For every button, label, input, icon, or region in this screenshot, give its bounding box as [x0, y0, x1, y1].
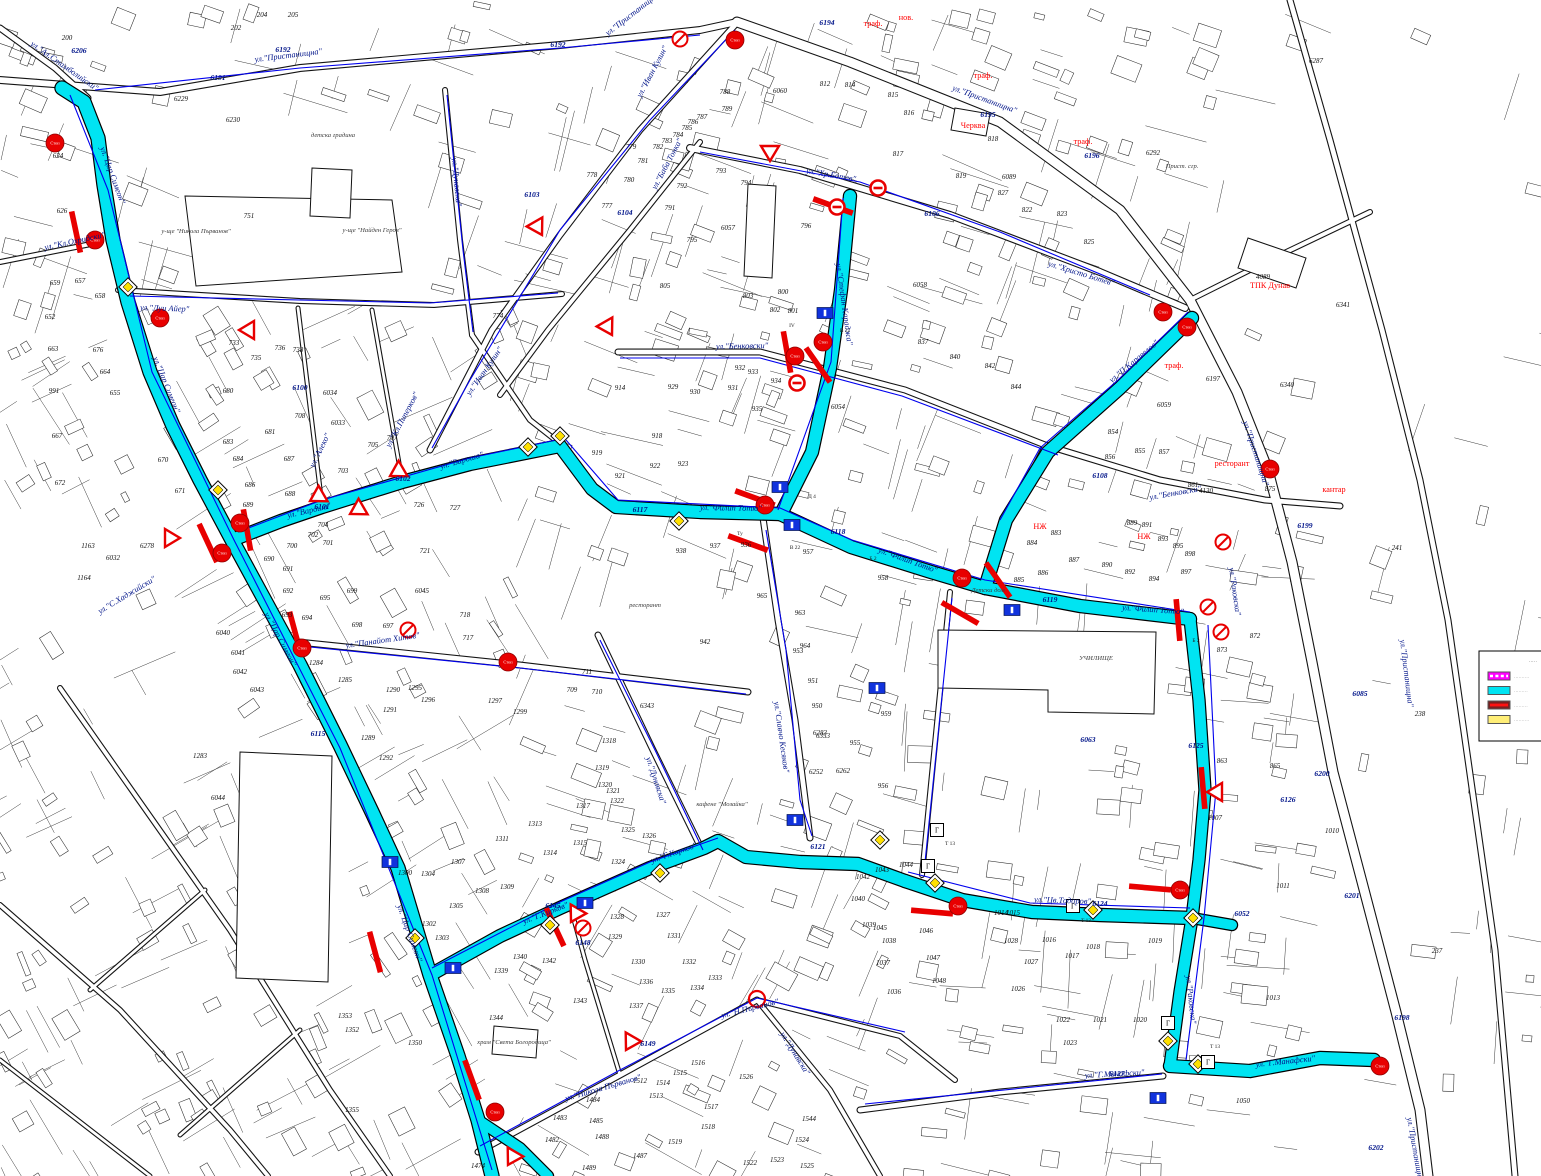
street-name-label: ул."Панайот Хитов": [344, 631, 421, 650]
street-ref-label: 6201: [1344, 891, 1359, 900]
parcel-label: 784: [673, 131, 684, 139]
svg-text:Стоп: Стоп: [217, 551, 227, 556]
poi-red-label: ресторант: [1215, 459, 1250, 468]
legend-item-label: ··········: [1514, 675, 1530, 680]
yield-sign-icon: [597, 317, 620, 339]
street-ref-label: 6106: [924, 209, 939, 218]
parcel-label: 702: [308, 531, 319, 539]
parcel-label: 863: [1217, 757, 1228, 765]
parcel-label: 1299: [513, 708, 528, 716]
stop-sign-icon: Стоп: [1371, 1057, 1389, 1075]
parcel-label: 855: [1135, 447, 1146, 455]
parcel-label: 897: [1181, 568, 1192, 576]
parcel-label: 1043: [875, 866, 890, 874]
parcel-label: 840: [950, 353, 961, 361]
parcel-label: 6032: [106, 554, 121, 562]
parcel-label: 1292: [379, 754, 394, 762]
parcel-label: 6041: [231, 649, 245, 657]
parcel-label: 955: [850, 739, 861, 747]
parcel-label: 1474: [471, 1162, 486, 1170]
parcel-label: 204: [257, 11, 268, 19]
street-ref-label: 6117: [633, 505, 649, 514]
parcel-label: 667: [52, 432, 63, 440]
poi-red-label: ТПК Дунав: [1250, 281, 1290, 290]
stop-sign-icon: Стоп: [213, 544, 231, 562]
stop-sign-icon: Стоп: [1178, 318, 1196, 336]
poi-red-label: траф.: [1074, 137, 1093, 146]
parcel-label: 991: [49, 387, 60, 395]
parcel-label: 1300: [398, 869, 413, 877]
svg-text:Стоп: Стоп: [503, 660, 513, 665]
poi-red-label: траф.: [1165, 361, 1184, 370]
parcel-label: 1314: [543, 849, 558, 857]
parcel-label: 1332: [682, 958, 697, 966]
street-ref-label: 6085: [1352, 689, 1367, 698]
stop-sign-icon: Стоп: [1171, 881, 1189, 899]
parcel-label: 938: [676, 547, 687, 555]
parcel-label: 671: [175, 487, 186, 495]
street-ref-label: 6104: [617, 208, 632, 217]
svg-text:Стоп: Стоп: [235, 521, 245, 526]
parcel-label: 1290: [386, 686, 401, 694]
sign-code-label: Т 13: [1081, 918, 1091, 924]
street-ref-label: 6100: [292, 383, 307, 392]
parcel-label: 1010: [1325, 827, 1340, 835]
parcel-label: 205: [288, 11, 299, 19]
parcel-label: 708: [295, 412, 306, 420]
street-name-label: ул."Филип Тотю": [699, 503, 762, 513]
info-sign-icon: [869, 683, 885, 694]
parcel-label: 1027: [1024, 958, 1039, 966]
parcel-label: 1305: [449, 902, 464, 910]
parcel-label: 687: [284, 455, 295, 463]
parcel-label: 726: [414, 501, 425, 509]
parcel-label: 697: [383, 622, 394, 630]
no-entry-sign-icon: [790, 376, 805, 391]
parcel-label: 6042: [233, 668, 248, 676]
parcel-label: 1516: [691, 1059, 706, 1067]
street-ref-label: 6148: [575, 938, 590, 947]
parcel-label: 1163: [81, 542, 95, 550]
parcel-label: 681: [265, 428, 276, 436]
parcel-label: 1489: [582, 1164, 597, 1172]
map-canvas[interactable]: СтопСтопСтопСтопСтопСтопСтопСтопСтопСтоп…: [0, 0, 1541, 1176]
parcel-label: 934: [771, 377, 782, 385]
parcel-label: 694: [302, 614, 313, 622]
parcel-label: 1487: [633, 1152, 648, 1160]
parcel-label: 1022: [1056, 1016, 1071, 1024]
yield-sign-icon: [165, 529, 180, 547]
parcel-label: 1048: [932, 977, 947, 985]
landmark-label: Детски дом: [970, 587, 1005, 594]
parcel-label: 1331: [667, 932, 681, 940]
road-closure-bar-icon: [911, 907, 953, 916]
parcel-label: 819: [956, 172, 967, 180]
parcel-label: 1519: [668, 1138, 683, 1146]
parcel-label: 1028: [1004, 937, 1019, 945]
parcel-label: 6089: [1002, 173, 1017, 181]
street-name-label: ул."Луи Айер": [139, 303, 190, 314]
parcel-label: 703: [338, 467, 349, 475]
parcel-label: 935: [752, 405, 763, 413]
parcel-label: 921: [615, 472, 626, 480]
parcel-label: 856: [1105, 453, 1116, 461]
sign-code-label: IV: [789, 323, 795, 329]
parcel-label: 1522: [743, 1159, 758, 1167]
poi-red-label: траф.: [864, 19, 883, 28]
parcel-label: 6197: [1206, 375, 1221, 383]
parcel-label: 795: [687, 236, 698, 244]
legend-item-label: ·········: [1514, 689, 1528, 694]
parcel-label: 923: [678, 460, 689, 468]
parcel-label: 794: [741, 179, 752, 187]
parcel-label: 1321: [606, 787, 620, 795]
street-ref-label: 6195: [980, 110, 995, 119]
parcel-label: 1339: [494, 967, 509, 975]
road-closure-bar-icon: [367, 931, 383, 973]
parcel-label: 1514: [656, 1079, 671, 1087]
parcel-label: 1047: [926, 954, 941, 962]
parcel-label: 692: [283, 587, 294, 595]
street-ref-label: 6108: [1092, 471, 1107, 480]
parcel-label: 865: [1270, 762, 1281, 770]
parcel-label: 717: [463, 634, 474, 642]
parcel-label: 937: [710, 542, 721, 550]
parcel-label: 918: [652, 432, 663, 440]
stop-sign-icon: Стоп: [293, 639, 311, 657]
parcel-label: 1017: [1065, 952, 1080, 960]
parcel-label: 1344: [489, 1014, 504, 1022]
parcel-label: 663: [48, 345, 59, 353]
parcel-label: 6043: [250, 686, 265, 694]
parcel-label: 6340: [1280, 381, 1295, 389]
parcel-label: 6040: [216, 629, 231, 637]
svg-text:Стоп: Стоп: [155, 316, 165, 321]
parcel-label: 664: [100, 368, 111, 376]
parcel-label: 6278: [140, 542, 155, 550]
street-ref-label: 6191: [210, 73, 225, 82]
landmark-label: детска градина: [311, 132, 356, 139]
junction-plate-sign-icon: Г: [1162, 1017, 1175, 1030]
parcel-label: 873: [1217, 646, 1228, 654]
street-ref-label: 6196: [1084, 151, 1099, 160]
parcel-label: 693: [282, 611, 293, 619]
svg-text:Г: Г: [935, 827, 939, 835]
parcel-label: 805: [660, 282, 671, 290]
parcel-label: 1513: [649, 1092, 664, 1100]
parcel-label: 1524: [795, 1136, 810, 1144]
parcel-label: 738: [293, 346, 304, 354]
parcel-label: 6033: [331, 419, 346, 427]
parcel-label: 710: [592, 688, 603, 696]
parcel-label: 704: [318, 521, 329, 529]
parcel-label: 1040: [851, 895, 866, 903]
parcel-label: 6252: [809, 768, 824, 776]
street-name-label: ул."Никола Първанов": [563, 1073, 642, 1104]
prohibition-sign-icon: [1201, 600, 1216, 615]
prohibition-sign-icon: [576, 921, 591, 936]
parcel-label: 889: [1127, 519, 1138, 527]
parcel-label: 655: [110, 389, 121, 397]
parcel-label: 727: [450, 504, 461, 512]
street-ref-label: 6103: [524, 190, 539, 199]
parcel-label: 659: [50, 279, 61, 287]
poi-red-label: траф.: [974, 71, 993, 80]
parcel-label: 690: [264, 555, 275, 563]
parcel-label: 1352: [345, 1026, 360, 1034]
landmark-label: Прист. сгр.: [1165, 163, 1199, 170]
info-sign-icon: [1150, 1093, 1166, 1104]
parcel-label: 6287: [1309, 57, 1324, 65]
parcel-label: 815: [888, 91, 899, 99]
stop-sign-icon: Стоп: [486, 1103, 504, 1121]
info-sign-icon: [577, 898, 593, 909]
parcel-label: 6341: [1336, 301, 1350, 309]
junction-plate-sign-icon: Г: [931, 824, 944, 837]
parcel-label: 875: [1265, 485, 1276, 493]
street-ref-label: 6192: [550, 40, 565, 49]
parcel-label: 857: [1159, 448, 1170, 456]
info-sign-icon: [1004, 605, 1020, 616]
svg-text:Стоп: Стоп: [790, 354, 800, 359]
parcel-label: 1036: [887, 988, 902, 996]
parcel-label: 735: [251, 354, 262, 362]
parcel-label: 942: [700, 638, 711, 646]
parcel-label: 1046: [919, 927, 934, 935]
parcel-label: 652: [45, 313, 56, 321]
parcel-label: 709: [567, 686, 578, 694]
parcel-label: 1355: [345, 1106, 360, 1114]
parcel-label: 1038: [882, 937, 897, 945]
parcel-label: 1353: [338, 1012, 353, 1020]
parcel-label: 237: [1432, 947, 1443, 955]
parcel-label: 1544: [802, 1115, 817, 1123]
svg-text:Стоп: Стоп: [50, 141, 60, 146]
parcel-label: 844: [1011, 383, 1022, 391]
parcel-label: 791: [665, 204, 676, 212]
parcel-label: 721: [420, 547, 431, 555]
parcel-label: 818: [988, 135, 999, 143]
parcel-label: 1019: [1148, 937, 1163, 945]
street-name-label: ул."Иван Кулин": [634, 44, 669, 100]
parcel-label: 238: [1415, 710, 1426, 718]
parcel-label: 698: [352, 621, 363, 629]
parcel-label: 200: [62, 34, 73, 42]
parcel-label: 670: [158, 456, 169, 464]
street-ref-label: 6115: [311, 729, 326, 738]
parcel-label: 684: [233, 455, 244, 463]
map-legend: ········································…: [1479, 651, 1541, 741]
parcel-label: 705: [368, 441, 379, 449]
svg-text:Стоп: Стоп: [730, 38, 740, 43]
parcel-label: 689: [243, 501, 254, 509]
parcel-label: 1324: [611, 858, 626, 866]
parcel-label: 1023: [1063, 1039, 1078, 1047]
label-layer: 2002022042056246266229623075165965765865…: [28, 0, 1443, 1176]
sign-code-label: Ту: [737, 531, 743, 537]
parcel-label: 1319: [595, 764, 610, 772]
parcel-label: 842: [985, 362, 996, 370]
parcel-label: 1164: [77, 574, 91, 582]
parcel-label: 691: [283, 565, 294, 573]
legend-item-label: ··········: [1514, 718, 1530, 723]
parcel-label: 1328: [610, 913, 625, 921]
parcel-label: 6044: [211, 794, 226, 802]
parcel-label: 672: [55, 479, 66, 487]
parcel-label: 1336: [639, 978, 654, 986]
parcel-label: 683: [223, 438, 234, 446]
street-ref-label: 6199: [1297, 521, 1312, 530]
parcel-label: 774: [493, 312, 504, 320]
parcel-label: 1311: [495, 835, 508, 843]
landmark-label: ресторант: [628, 602, 661, 609]
parcel-label: 1295: [408, 684, 423, 692]
parcel-label: 1021: [1093, 1016, 1107, 1024]
street-name-label: ул."Славчо Кесяков": [772, 700, 791, 774]
prohibition-sign-icon: [1214, 625, 1229, 640]
parcel-label: 6292: [1146, 149, 1161, 157]
parcel-label: 817: [893, 150, 904, 158]
parcel-label: 822: [1022, 206, 1033, 214]
parcel-label: 1042: [856, 873, 871, 881]
street-ref-label: 6125: [1188, 741, 1203, 750]
svg-text:Г: Г: [1166, 1020, 1170, 1028]
parcel-label: 793: [716, 167, 727, 175]
parcel-label: 1007: [1208, 814, 1223, 822]
parcel-label: 699: [347, 587, 358, 595]
parcel-label: 1044: [899, 861, 914, 869]
stop-sign-icon: Стоп: [786, 347, 804, 365]
stop-sign-icon: Стоп: [814, 333, 832, 351]
parcel-label: 777: [602, 202, 613, 210]
parcel-label: 6054: [831, 403, 846, 411]
sign-code-label: Д 4: [808, 494, 816, 500]
poi-red-label: нов.: [899, 13, 913, 22]
parcel-label: 890: [1102, 561, 1113, 569]
parcel-label: 1304: [421, 870, 436, 878]
parcel-label: 825: [1084, 238, 1095, 246]
parcel-label: 6059: [1157, 401, 1172, 409]
parcel-label: 891: [1142, 521, 1153, 529]
street-ref-label: 6118: [831, 527, 846, 536]
parcel-label: 1327: [656, 911, 671, 919]
parcel-label: 1518: [701, 1123, 716, 1131]
stop-sign-icon: Стоп: [726, 31, 744, 49]
parcel-label: 657: [75, 277, 86, 285]
street-ref-label: 6063: [1080, 735, 1095, 744]
parcel-label: 894: [1149, 575, 1160, 583]
svg-text:Г: Г: [1206, 1059, 1210, 1067]
parcel-label: 964: [800, 642, 811, 650]
svg-text:Стоп: Стоп: [490, 1110, 500, 1115]
parcel-label: 1515: [673, 1069, 688, 1077]
stop-sign-icon: Стоп: [499, 653, 517, 671]
parcel-label: 919: [592, 449, 603, 457]
sign-code-label: Б 2: [869, 556, 876, 562]
parcel-label: 965: [757, 592, 768, 600]
poi-red-label: НЖ: [1137, 532, 1151, 541]
parcel-label: 1525: [800, 1162, 815, 1170]
parcel-label: 779: [626, 143, 637, 151]
parcel-label: 241: [1392, 544, 1403, 552]
parcel-label: 892: [1125, 568, 1136, 576]
parcel-label: 1291: [383, 706, 397, 714]
parcel-label: 6034: [323, 389, 338, 397]
parcel-label: 6230: [226, 116, 241, 124]
parcel-label: 789: [722, 105, 733, 113]
parcel-label: 1026: [1011, 985, 1026, 993]
parcel-label: 1045: [873, 924, 888, 932]
street-ref-label: 6124: [1092, 899, 1107, 908]
parcel-label: 1283: [193, 752, 208, 760]
parcel-label: 658: [95, 292, 106, 300]
parcel-label: 950: [812, 702, 823, 710]
parcel-label: 778: [587, 171, 598, 179]
parcel-label: 801: [788, 307, 799, 315]
parcel-label: 1284: [309, 659, 324, 667]
parcel-label: 1011: [1276, 882, 1289, 890]
parcel-label: 956: [878, 782, 889, 790]
parcel-label: 711: [582, 668, 592, 676]
street-name-label: ул."Алеко": [307, 431, 332, 469]
parcel-label: 1330: [631, 958, 646, 966]
parcel-label: 1307: [451, 858, 466, 866]
svg-text:Стоп: Стоп: [818, 340, 828, 345]
road-closure-bar-icon: [1129, 883, 1171, 892]
parcel-label: 1326: [642, 832, 657, 840]
stop-sign-icon: Стоп: [1154, 303, 1172, 321]
street-ref-label: 6198: [1394, 1013, 1409, 1022]
parcel-label: 1317: [576, 802, 591, 810]
parcel-label: 1334: [690, 984, 705, 992]
parcel-label: 936: [741, 541, 752, 549]
parcel-label: 6283: [813, 729, 828, 737]
parcel-label: 1517: [704, 1103, 719, 1111]
no-entry-sign-icon: [871, 181, 886, 196]
street-ref-label: 6149: [640, 1039, 655, 1048]
parcel-label: 963: [795, 609, 806, 617]
parcel-label: 1325: [621, 826, 636, 834]
parcel-label: 783: [662, 137, 673, 145]
poi-red-label: кантар: [1322, 485, 1345, 494]
parcel-label: 202: [231, 24, 242, 32]
parcel-label: 1308: [475, 887, 490, 895]
parcel-label: 781: [638, 157, 649, 165]
street-ref-label: 6119: [1043, 595, 1058, 604]
parcel-label: 812: [820, 80, 831, 88]
parcel-label: 929: [668, 383, 679, 391]
svg-text:Стоп: Стоп: [953, 904, 963, 909]
parcel-label: 816: [904, 109, 915, 117]
parcel-label: 1013: [1266, 994, 1281, 1002]
info-sign-icon: [784, 520, 800, 531]
parcel-label: 872: [1250, 632, 1261, 640]
parcel-label: 1014: [994, 909, 1009, 917]
parcel-label: 6229: [174, 95, 189, 103]
map-viewport[interactable]: СтопСтопСтопСтопСтопСтопСтопСтопСтопСтоп…: [0, 0, 1541, 1176]
parcel-label: 1322: [610, 797, 625, 805]
street-name-label: ул."Дунавска": [778, 1029, 812, 1076]
landmark-label: храм "Света Богородица": [476, 1039, 551, 1046]
parcel-label: 1285: [338, 676, 353, 684]
parcel-label: 6057: [721, 224, 736, 232]
svg-text:Стоп: Стоп: [1158, 310, 1168, 315]
parcel-label: 680: [223, 387, 234, 395]
poi-red-label: НЖ: [1033, 522, 1047, 531]
street-ref-label: 6126: [1280, 795, 1295, 804]
parcel-label: 883: [1051, 529, 1062, 537]
street-name-label: ул."Пристанищна": [1398, 638, 1415, 708]
